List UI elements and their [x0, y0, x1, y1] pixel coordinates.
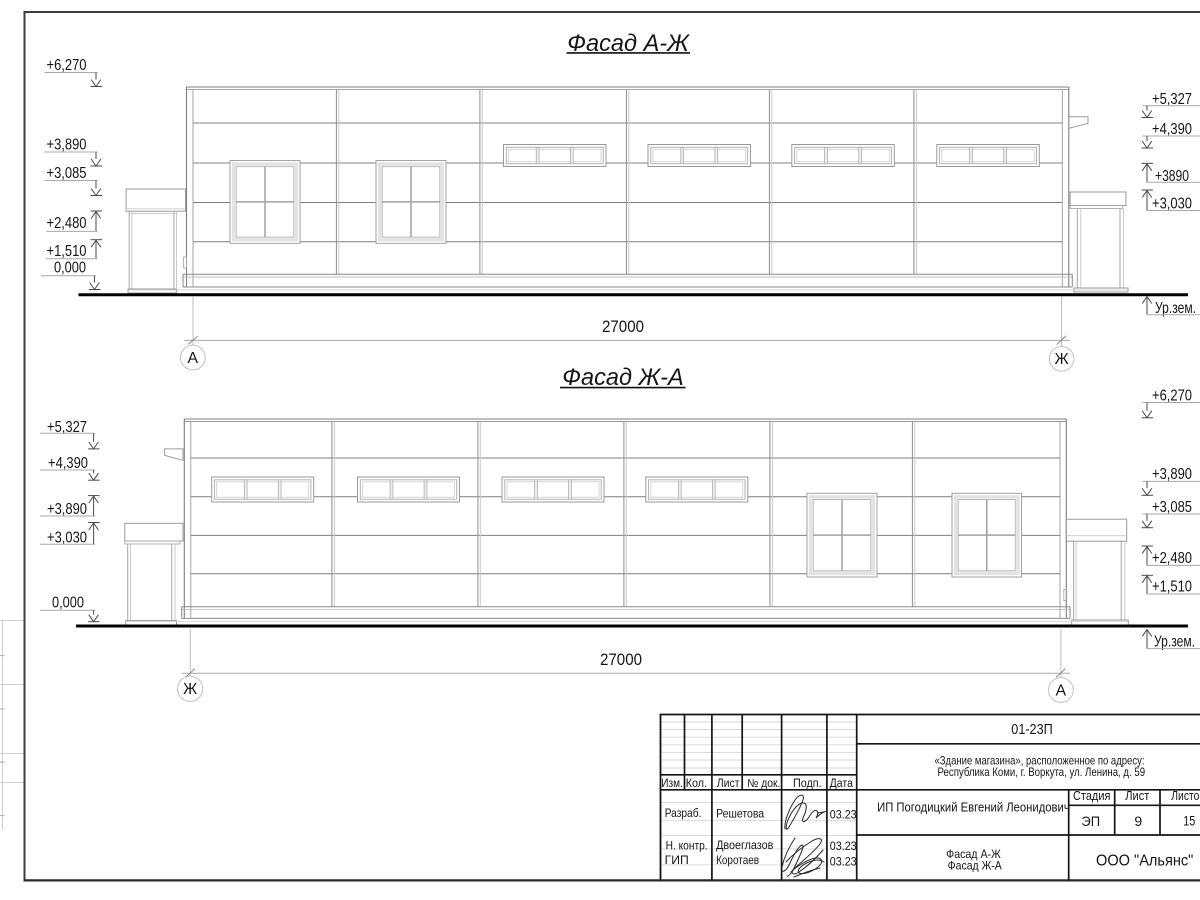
- svg-text:Решетова: Решетова: [716, 807, 764, 821]
- svg-text:27000: 27000: [600, 650, 642, 669]
- svg-text:Коротаев: Коротаев: [716, 853, 759, 867]
- svg-text:03.23: 03.23: [830, 807, 857, 821]
- svg-text:+4,390: +4,390: [1152, 121, 1192, 138]
- svg-text:+3,890: +3,890: [47, 137, 87, 154]
- svg-text:Н. контр.: Н. контр.: [666, 838, 708, 852]
- svg-text:ООО "Альянс": ООО "Альянс": [1096, 852, 1193, 869]
- svg-text:№ док.: № док.: [747, 778, 780, 790]
- svg-text:А: А: [1056, 682, 1067, 699]
- svg-text:Лист: Лист: [1125, 789, 1149, 803]
- svg-text:А: А: [188, 350, 199, 367]
- svg-text:+3,085: +3,085: [1152, 499, 1192, 516]
- svg-text:Лист: Лист: [717, 778, 740, 790]
- svg-text:Изм.: Изм.: [661, 778, 683, 790]
- svg-text:+2,480: +2,480: [1152, 550, 1192, 567]
- svg-text:+2,480: +2,480: [47, 215, 87, 232]
- svg-text:03.23: 03.23: [830, 839, 857, 853]
- svg-text:Листов: Листов: [1171, 789, 1200, 803]
- svg-text:0,000: 0,000: [52, 595, 84, 612]
- svg-text:ЭП: ЭП: [1081, 813, 1100, 829]
- svg-text:Двоеглазов: Двоеглазов: [716, 838, 773, 852]
- svg-text:Фасад Ж-А: Фасад Ж-А: [948, 859, 1002, 873]
- svg-text:+4,390: +4,390: [48, 455, 88, 472]
- svg-text:Кол.: Кол.: [686, 778, 707, 790]
- svg-text:+1,510: +1,510: [1152, 579, 1192, 596]
- svg-text:+3,030: +3,030: [1152, 196, 1192, 213]
- svg-text:+3,890: +3,890: [47, 501, 87, 518]
- svg-text:Ж: Ж: [1055, 351, 1070, 368]
- svg-text:9: 9: [1134, 813, 1142, 829]
- svg-text:15: 15: [1183, 812, 1195, 828]
- svg-text:+3,085: +3,085: [47, 165, 87, 182]
- svg-text:03.23: 03.23: [830, 855, 857, 869]
- svg-text:+6,270: +6,270: [47, 57, 87, 74]
- svg-text:01-23П: 01-23П: [1011, 722, 1052, 738]
- svg-text:Разраб.: Разраб.: [665, 806, 702, 820]
- svg-text:+6,270: +6,270: [1152, 388, 1192, 405]
- svg-text:+3,890: +3,890: [1152, 466, 1192, 483]
- svg-text:Ур.зем.: Ур.зем.: [1154, 633, 1195, 650]
- svg-text:Подп.: Подп.: [793, 778, 822, 790]
- svg-text:Стадия: Стадия: [1073, 789, 1110, 803]
- svg-text:ГИП: ГИП: [665, 853, 689, 867]
- svg-text:0,000: 0,000: [54, 259, 86, 276]
- svg-text:ИП Погодицкий Евгений Леонидов: ИП Погодицкий Евгений Леонидович: [877, 800, 1070, 815]
- svg-text:Ж: Ж: [183, 681, 198, 698]
- svg-text:Дата: Дата: [830, 778, 854, 790]
- svg-text:+1,510: +1,510: [47, 243, 87, 260]
- svg-text:27000: 27000: [602, 317, 644, 336]
- svg-text:Республика Коми, г. Воркута, у: Республика Коми, г. Воркута, ул. Ленина,…: [938, 765, 1146, 779]
- svg-text:+3,030: +3,030: [47, 529, 87, 546]
